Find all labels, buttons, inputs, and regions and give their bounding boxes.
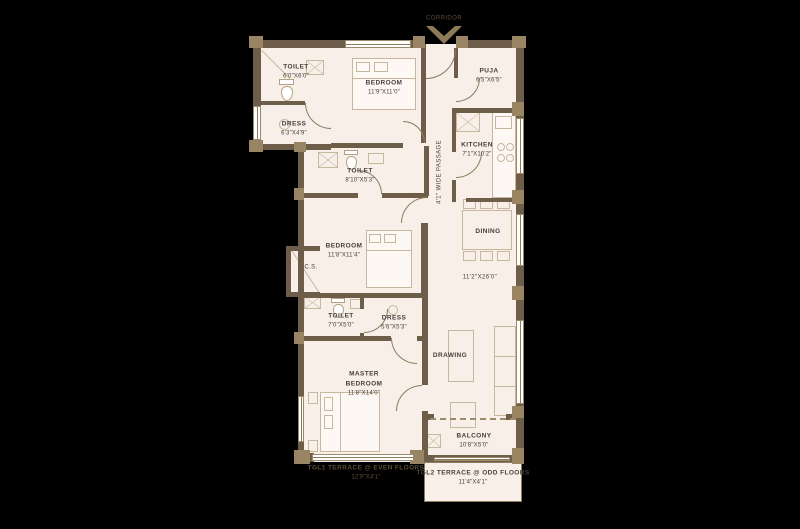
room-dim: 11'8"X11'4" [326,251,363,260]
room-name: DRAWING [433,351,467,361]
pilaster [512,406,524,418]
wall-segment [417,336,424,341]
pillow [384,234,396,243]
corridor-label: CORRIDOR [426,14,462,23]
room-name: KITCHEN [461,140,493,150]
pilaster [512,102,524,116]
wall-segment [421,223,428,293]
terrace-dim: 12'9"X4'1" [308,473,425,482]
washbasin-counter [368,153,384,164]
dining-chair [497,251,510,261]
room-name: PUJA [476,66,502,76]
room-name: DRESS [381,313,407,323]
hob-burner [506,143,514,151]
room-dim: 7'1"X10'2" [461,150,493,159]
wall-segment [257,101,305,105]
wall-segment [466,198,516,202]
hob-burner [497,143,505,151]
tgl1-terrace-label: TGL1 TERRACE @ EVEN FLOORS 12'9"X4'1" [308,463,425,482]
washer-icon [426,434,441,448]
room-label-puja: PUJA 6'5"X6'5" [476,66,502,85]
hob-burner [497,154,505,162]
room-name: BEDROOM [326,241,363,251]
room-dim: 10'8"X5'0" [457,441,492,450]
room-dim: 8'10"X5'3" [345,176,374,185]
room-name: TOILET [283,62,309,72]
pilaster [294,142,306,152]
wall-segment [422,293,428,341]
room-dim: 11'8"X14'0" [335,389,393,398]
pilaster [512,36,526,48]
wall-segment [331,143,403,148]
balcony-sliding-door [430,418,516,420]
pilaster [294,450,310,464]
blanket-line [366,250,412,251]
dining-chair [463,251,476,261]
room-label-toilet-1: TOILET 6'0"X6'0" [283,62,309,81]
shelf-divider [494,386,516,387]
toilet-cistern [331,298,345,303]
drawing-shelf-unit [494,326,516,416]
hall-dimension-label: 11'2"X26'0" [463,273,498,282]
passage-text: 4'1" WIDE PASSAGE [435,140,444,204]
room-dim: 6'0"X6'0" [283,72,309,81]
pilaster [249,36,263,48]
window [516,118,524,174]
terrace-text: TGL2 TERRACE @ ODD FLOORS [416,468,529,478]
dining-chair [480,251,493,261]
wall-segment [302,293,428,298]
room-name: BEDROOM [366,78,403,88]
pillow [356,62,370,72]
shelf-divider [494,356,516,357]
room-label-bedroom-2: BEDROOM 11'8"X11'4" [326,241,363,260]
pilaster [294,188,304,200]
toilet-cistern [344,150,358,155]
drawing-seat [450,402,476,428]
pilaster [413,36,425,48]
wall-segment [360,295,364,309]
room-label-dress-1: DRESS 6'3"X4'9" [281,119,307,138]
window [516,320,524,404]
cupboard-label: C.S. [304,263,317,272]
side-table [308,392,318,404]
pillow [324,397,333,411]
terrace-text: TGL1 TERRACE @ EVEN FLOORS [308,463,425,473]
hob-burner [506,154,514,162]
kitchen-cabinet-icon [456,112,480,132]
pilaster [456,36,468,48]
wall-segment [286,246,291,297]
window [516,214,524,266]
pilaster [294,332,304,344]
room-label-dress-2: DRESS 5'6"X5'3" [381,313,407,332]
room-label-kitchen: KITCHEN 7'1"X10'2" [461,140,493,159]
pillow [369,234,381,243]
room-dim: 5'6"X5'3" [381,323,407,332]
wall-segment [422,341,428,385]
floor-plan-canvas: CORRIDOR TOILET 6'0"X6'0" DRESS 6'3"X4'9… [0,0,800,529]
hall-dim-text: 11'2"X26'0" [463,273,498,282]
window [345,40,411,48]
room-name: DINING [475,227,500,237]
wall-segment [302,193,358,198]
room-label-drawing: DRAWING [433,351,467,361]
wall-segment [286,246,320,251]
wall-segment [364,336,391,341]
pilaster [249,140,263,152]
kitchen-sink [495,116,512,129]
room-dim: 6'5"X6'5" [476,76,502,85]
cupboard-text: C.S. [304,263,317,272]
room-dim: 6'3"X4'9" [281,129,307,138]
wall-segment [302,336,364,341]
wall-segment [424,146,429,196]
pillow [324,415,333,429]
room-label-dining: DINING [475,227,500,237]
blanket-line [340,392,341,452]
room-name: MASTER BEDROOM [335,369,393,389]
room-label-toilet-2: TOILET 8'10"X5'3" [345,166,374,185]
room-label-toilet-3: TOILET 7'0"X5'0" [328,311,354,330]
shower-tray-icon [318,152,338,168]
pilaster [512,286,524,300]
balcony-railing [434,457,510,461]
room-label-bedroom-1: BEDROOM 11'9"X11'0" [366,78,403,97]
room-label-balcony: BALCONY 10'8"X5'0" [457,431,492,450]
room-name: BALCONY [457,431,492,441]
pilaster [512,190,524,204]
room-dim: 7'0"X5'0" [328,321,354,330]
window [298,396,304,442]
room-dim: 11'9"X11'0" [366,88,403,97]
window [312,454,414,461]
corridor-text: CORRIDOR [426,14,462,23]
pillow [374,62,388,72]
wall-segment [452,108,456,152]
room-name: TOILET [345,166,374,176]
room-name: TOILET [328,311,354,321]
room-name: DRESS [281,119,307,129]
wall-segment [454,108,516,113]
wall-segment [452,180,456,202]
window [253,106,261,140]
room-label-master-bedroom: MASTER BEDROOM 11'8"X14'0" [335,369,393,398]
tgl2-terrace-label: TGL2 TERRACE @ ODD FLOORS 11'4"X4'1" [416,468,529,487]
wall-segment [253,144,331,150]
terrace-dim: 11'4"X4'1" [416,478,529,487]
pilaster [512,448,524,464]
passage-label: 4'1" WIDE PASSAGE [435,140,444,204]
